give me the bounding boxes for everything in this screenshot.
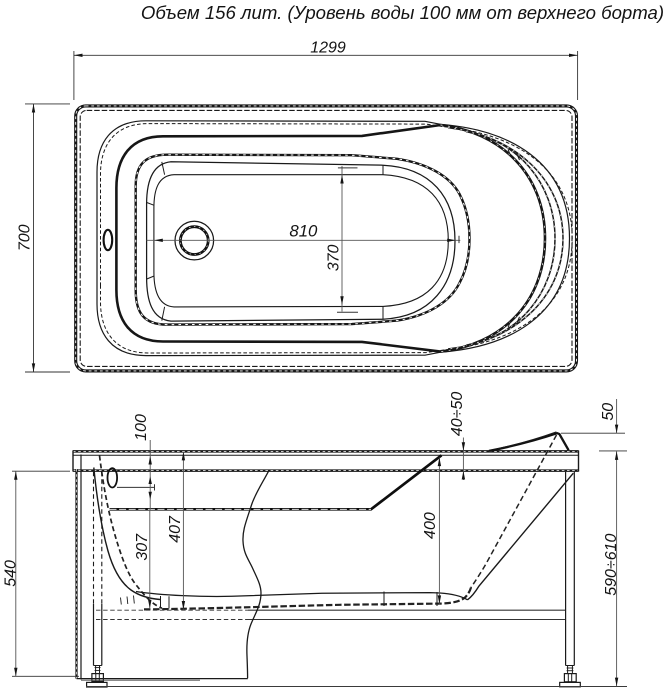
svg-text:40÷50: 40÷50: [449, 392, 466, 436]
svg-text:50: 50: [600, 403, 617, 421]
svg-text:700: 700: [16, 224, 33, 251]
svg-text:100: 100: [133, 414, 150, 441]
svg-text:590÷610: 590÷610: [603, 534, 620, 596]
svg-text:540: 540: [3, 560, 20, 587]
svg-text:407: 407: [167, 515, 184, 543]
svg-text:307: 307: [134, 533, 151, 561]
svg-text:400: 400: [422, 512, 439, 539]
svg-text:1299: 1299: [310, 39, 346, 56]
svg-text:Объем 156 лит. (Уровень воды 1: Объем 156 лит. (Уровень воды 100 мм от в…: [141, 2, 664, 23]
svg-text:370: 370: [326, 244, 343, 271]
svg-text:810: 810: [289, 222, 318, 241]
